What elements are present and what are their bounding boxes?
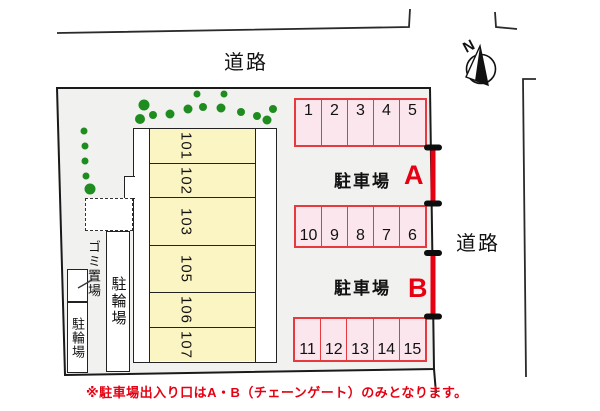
tree-dot	[217, 104, 226, 113]
stall-number: 5	[408, 102, 417, 120]
road-line-corner	[495, 12, 517, 29]
parking-area-b-label: 駐車場	[334, 274, 391, 299]
entrance-note: ※駐車場出入り口はA・B（チェーンゲート）のみとなります。	[86, 382, 556, 401]
parking-stall: 6	[399, 207, 425, 246]
building-entrance-notch	[124, 176, 135, 199]
tree-dot	[135, 114, 145, 124]
tree-dot	[81, 128, 88, 135]
tree-dot	[199, 103, 207, 111]
road-line-right	[523, 79, 536, 377]
tree-dot	[85, 184, 96, 195]
gate-b-letter: B	[408, 275, 428, 302]
parking-row-11-15: 11 12 13 14 15	[293, 317, 427, 362]
parking-stall: 9	[321, 207, 347, 246]
parking-area-a-label: 駐車場	[334, 167, 391, 192]
parking-stall: 3	[347, 100, 373, 145]
stall-number: 9	[330, 227, 339, 245]
unit-106-label: 106	[177, 296, 194, 324]
tree-dot	[166, 110, 175, 119]
stall-number: 1	[304, 102, 313, 120]
parking-stall: 12	[320, 319, 346, 360]
stall-number: 14	[377, 341, 395, 359]
bicycle-parking-sub: 駐輪場	[67, 302, 88, 373]
road-line-top	[57, 9, 410, 33]
unit-103: 103	[150, 198, 255, 246]
unit-107: 107	[150, 328, 255, 361]
tree-dot	[253, 112, 261, 120]
parking-stall: 7	[373, 207, 399, 246]
parking-stall: 10	[296, 207, 321, 246]
stall-number: 3	[356, 102, 365, 120]
stall-number: 7	[382, 227, 391, 245]
unit-102-label: 102	[177, 166, 194, 194]
parking-stall: 15	[399, 319, 425, 360]
stall-number: 6	[408, 227, 417, 245]
garbage-box	[67, 269, 88, 302]
building-units: 101 102 103 105 106 107	[149, 128, 256, 363]
stall-number: 11	[299, 341, 316, 359]
tree-dot	[237, 108, 245, 116]
stall-number: 10	[300, 227, 318, 245]
unit-103-label: 103	[177, 207, 194, 235]
unit-107-label: 107	[177, 330, 194, 358]
tree-dot	[82, 158, 89, 165]
tree-dot	[269, 105, 277, 113]
parking-stall: 13	[346, 319, 372, 360]
parking-row-1-5: 1 2 3 4 5	[294, 98, 427, 147]
stall-number: 15	[404, 341, 422, 359]
parking-row-10-6: 10 9 8 7 6	[294, 205, 427, 248]
parking-stall: 5	[399, 100, 425, 145]
stall-number: 2	[330, 102, 339, 120]
unit-101: 101	[150, 129, 255, 164]
north-label: N	[460, 37, 478, 57]
stall-number: 12	[325, 341, 343, 359]
parking-stall: 1	[296, 100, 321, 145]
tree-dot	[139, 100, 150, 111]
stall-number: 13	[351, 341, 369, 359]
compass: N	[460, 37, 495, 85]
unit-101-label: 101	[177, 132, 194, 160]
parking-stall: 8	[347, 207, 373, 246]
unit-105-label: 105	[177, 255, 194, 283]
parking-stall: 14	[373, 319, 399, 360]
gate-a-letter: A	[404, 162, 424, 189]
unit-102: 102	[150, 164, 255, 198]
parking-stall: 4	[373, 100, 399, 145]
bicycle-parking-main: 駐輪場	[106, 231, 130, 372]
stall-number: 8	[356, 227, 365, 245]
unit-105: 105	[150, 246, 255, 293]
tree-dot	[184, 105, 193, 114]
dashed-area	[85, 198, 133, 231]
tree-dot	[194, 91, 201, 98]
parking-stall: 11	[295, 319, 320, 360]
road-label-top: 道路	[224, 46, 268, 75]
unit-106: 106	[150, 293, 255, 328]
tree-dot	[149, 111, 157, 119]
road-label-right: 道路	[456, 227, 500, 256]
site-plan: N 101 102 103 105 106 107 ゴミ置場 駐輪場 駐輪場 1…	[0, 0, 600, 411]
tree-dot	[221, 91, 228, 98]
bicycle-parking-main-label: 駐輪場	[111, 276, 126, 327]
bicycle-parking-sub-label: 駐輪場	[71, 317, 84, 359]
tree-dot	[82, 143, 89, 150]
tree-dot	[263, 116, 272, 125]
parking-stall: 2	[321, 100, 347, 145]
garbage-label: ゴミ置場	[87, 240, 100, 298]
stall-number: 4	[382, 102, 391, 120]
tree-dot	[83, 173, 90, 180]
